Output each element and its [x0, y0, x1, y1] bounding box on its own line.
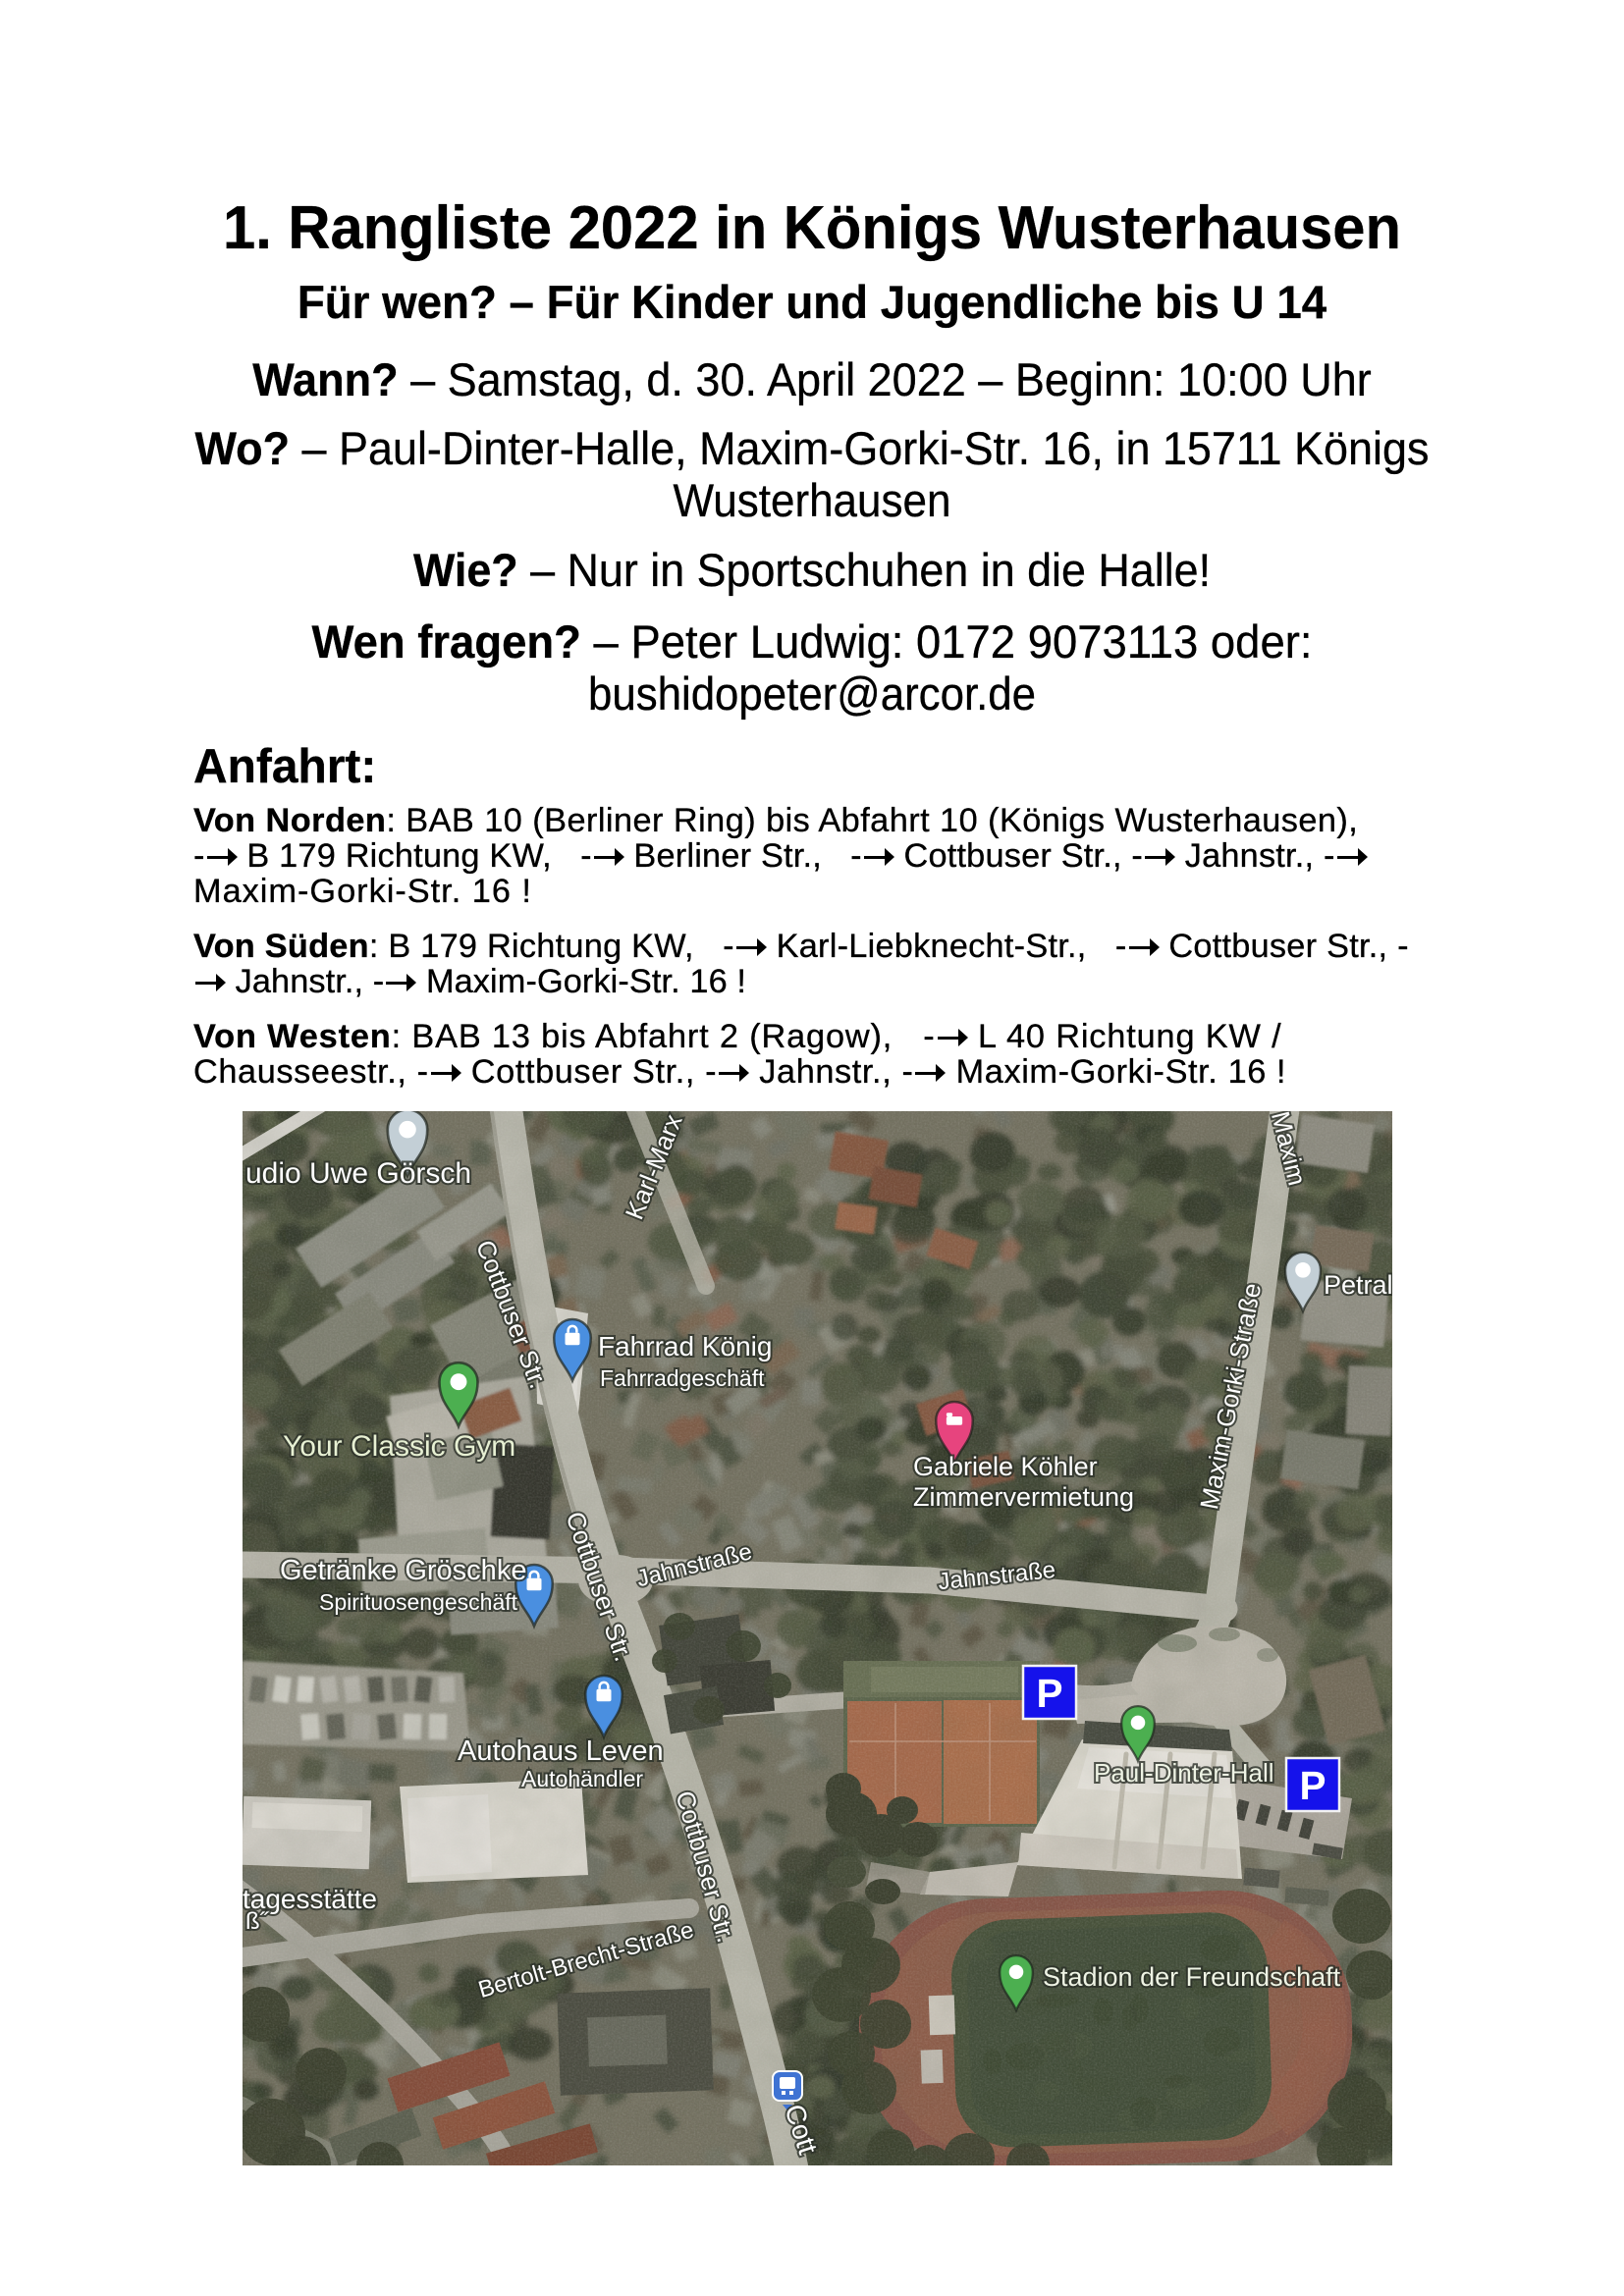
svg-text:Autohändler: Autohändler — [521, 1766, 643, 1791]
svg-text:Getränke Gröschke: Getränke Gröschke — [280, 1555, 526, 1586]
svg-text:Fahrradgeschäft: Fahrradgeschäft — [600, 1365, 765, 1391]
svg-text:udio Uwe Görsch: udio Uwe Görsch — [245, 1157, 471, 1190]
svg-text:Fahrrad König: Fahrrad König — [598, 1331, 772, 1362]
svg-text:Paul-Dinter-Hall: Paul-Dinter-Hall — [1094, 1758, 1274, 1788]
svg-text:Petral: Petral — [1324, 1270, 1392, 1300]
svg-text:P: P — [1299, 1763, 1326, 1808]
svg-text:Autohaus Leven: Autohaus Leven — [458, 1735, 664, 1767]
svg-text:Zimmervermietung: Zimmervermietung — [913, 1482, 1134, 1512]
svg-text:ß˝: ß˝ — [245, 1908, 270, 1935]
svg-text:Your Classic Gym: Your Classic Gym — [283, 1430, 515, 1463]
svg-text:Stadion der Freundschaft: Stadion der Freundschaft — [1043, 1962, 1341, 1992]
svg-text:Gabriele Köhler: Gabriele Köhler — [913, 1452, 1098, 1481]
svg-text:P: P — [1036, 1671, 1062, 1716]
svg-text:Spirituosengeschäft: Spirituosengeschäft — [319, 1589, 518, 1615]
